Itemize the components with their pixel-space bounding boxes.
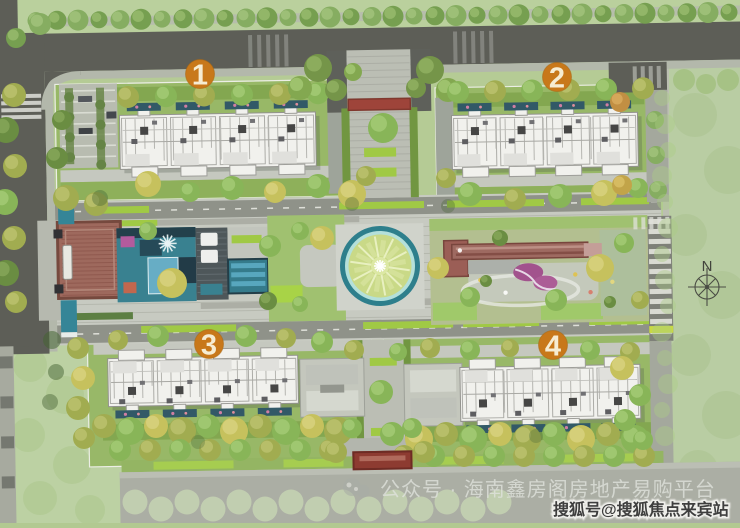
svg-text:3: 3 bbox=[201, 330, 217, 362]
svg-text:4: 4 bbox=[545, 331, 561, 363]
svg-text:公众号 · 海南鑫房阁房地产易购平台: 公众号 · 海南鑫房阁房地产易购平台 bbox=[380, 478, 716, 501]
svg-text:1: 1 bbox=[192, 60, 208, 92]
svg-text:搜狐号@搜狐焦点来宾站: 搜狐号@搜狐焦点来宾站 bbox=[553, 500, 729, 519]
svg-text:2: 2 bbox=[549, 63, 565, 95]
